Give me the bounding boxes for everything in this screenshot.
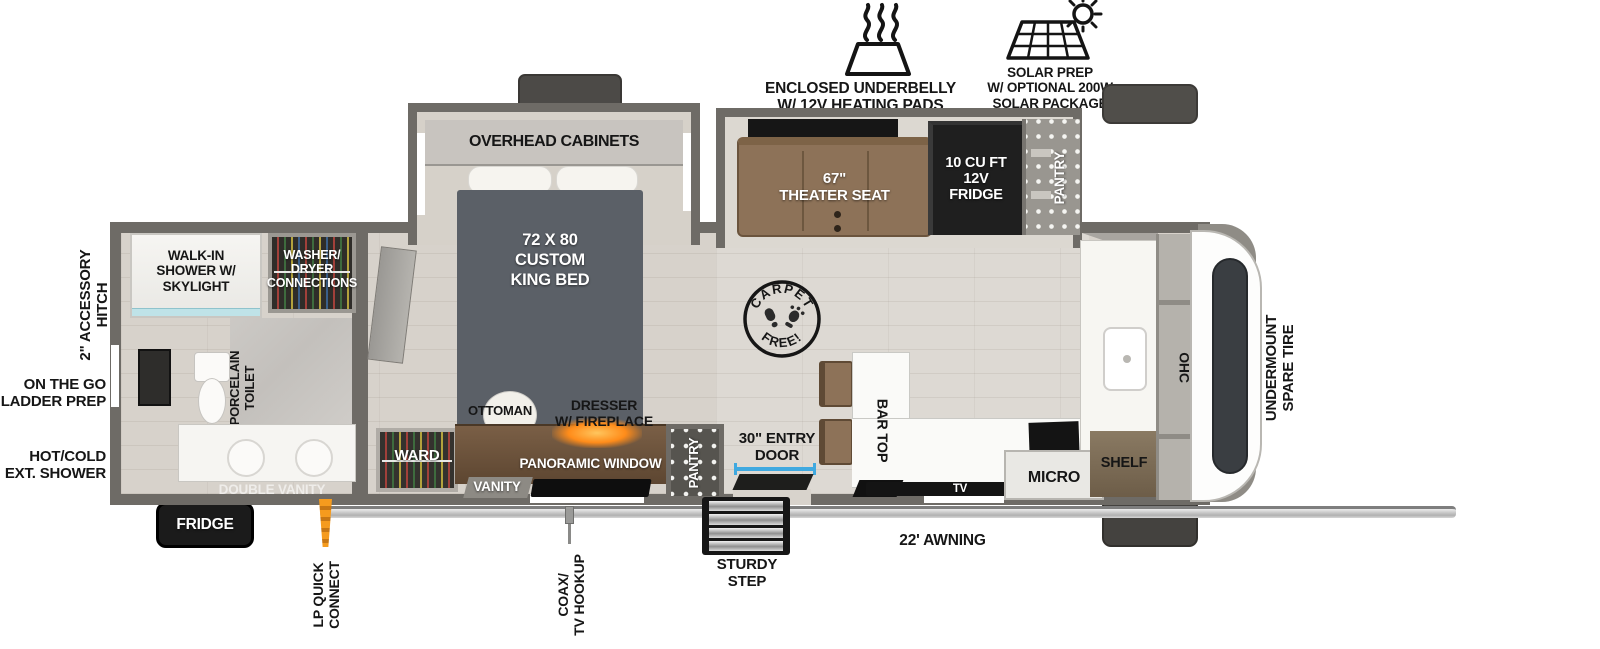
toilet-bowl bbox=[198, 378, 226, 424]
microwave-label: MICRO bbox=[1004, 468, 1104, 488]
kitchen-pantry bbox=[1022, 119, 1080, 235]
exterior-storage-box-top bbox=[1102, 84, 1198, 124]
sturdy-step-label: STURDY STEP bbox=[702, 556, 792, 592]
double-vanity-counter bbox=[178, 424, 356, 482]
sturdy-step-graphic bbox=[702, 497, 790, 555]
step-tread bbox=[709, 501, 783, 511]
heating-pads-icon bbox=[836, 2, 920, 78]
bar-stool-1 bbox=[819, 361, 853, 407]
svg-text:FREE!: FREE! bbox=[759, 329, 805, 350]
living-tv bbox=[866, 482, 1008, 496]
theater-seat-label: 67" THEATER SEAT bbox=[757, 168, 912, 208]
carpet-free-stamp: CARPET FREE! bbox=[738, 274, 826, 364]
bed-slide-window-right bbox=[683, 133, 691, 211]
entry-door-label: 30" ENTRY DOOR bbox=[734, 431, 820, 465]
overhead-cabinets-label: OVERHEAD CABINETS bbox=[469, 133, 639, 151]
bedroom-vanity-label: VANITY bbox=[466, 479, 528, 495]
step-tread bbox=[709, 541, 783, 551]
awning-rail bbox=[320, 506, 1456, 518]
walk-in-shower-label: WALK-IN SHOWER W/ SKYLIGHT bbox=[134, 242, 258, 300]
bar-top-label: BAR TOP bbox=[874, 376, 889, 486]
awning-label: 22' AWNING bbox=[880, 532, 1005, 550]
sink-faucet bbox=[1123, 355, 1131, 363]
kitchen-sink bbox=[1103, 327, 1147, 391]
king-bed bbox=[457, 190, 643, 430]
porcelain-toilet-label: PORCELAIN TOILET bbox=[228, 343, 258, 433]
ext-shower-label: HOT/COLD EXT. SHOWER bbox=[0, 448, 106, 484]
coax-tv-hookup-label: COAX/ TV HOOKUP bbox=[556, 540, 588, 649]
vanity-sink-left bbox=[227, 439, 265, 477]
wardrobe-label: WARD bbox=[376, 446, 458, 466]
exterior-fridge-label: FRIDGE bbox=[176, 516, 233, 533]
front-cap-window bbox=[1212, 258, 1248, 474]
spare-tire-label: UNDERMOUNT SPARE TIRE bbox=[1264, 293, 1298, 443]
step-tread bbox=[709, 514, 783, 524]
king-bed-label: 72 X 80 CUSTOM KING BED bbox=[470, 230, 630, 292]
measure-cap-left bbox=[734, 463, 737, 475]
bedroom-pantry-label: PANTRY bbox=[687, 428, 701, 498]
shower-glass bbox=[132, 308, 260, 316]
bar-stool-2 bbox=[819, 419, 853, 465]
lp-quick-connect-label: LP QUICK CONNECT bbox=[311, 545, 343, 645]
ottoman-label: OTTOMAN bbox=[458, 404, 542, 418]
step-tread bbox=[709, 528, 783, 538]
bedroom-vanity-top bbox=[530, 479, 651, 497]
cooktop bbox=[1028, 421, 1079, 454]
carpet-free-stamp-top-text: CARPET bbox=[747, 281, 817, 312]
entry-door-panel bbox=[732, 474, 813, 490]
bathroom-tv bbox=[138, 349, 171, 406]
pantry-shelf bbox=[1031, 191, 1051, 199]
footprints-graphic bbox=[763, 303, 806, 331]
living-tv-label: TV bbox=[944, 483, 976, 496]
cup-holder bbox=[834, 211, 841, 218]
svg-text:CARPET: CARPET bbox=[747, 281, 817, 312]
cup-holder bbox=[834, 225, 841, 232]
double-vanity-label: DOUBLE VANITY bbox=[190, 482, 354, 498]
kitchen-pantry-label: PANTRY bbox=[1052, 138, 1068, 218]
carpet-free-stamp-bottom-text: FREE! bbox=[759, 329, 805, 350]
coax-hookup-fitting bbox=[565, 506, 574, 524]
pantry-shelf bbox=[1031, 149, 1051, 157]
floorplan-canvas: ENCLOSED UNDERBELLY W/ 12V HEATING PADS … bbox=[0, 0, 1600, 649]
washer-dryer-label: WASHER/ DRYER CONNECTIONS bbox=[266, 240, 358, 298]
dresser-fireplace-label: DRESSER W/ FIREPLACE bbox=[545, 400, 663, 428]
bed-slide-window-left bbox=[417, 133, 425, 215]
exterior-fridge: FRIDGE bbox=[156, 502, 254, 548]
ladder-prep-label: ON THE GO LADDER PREP bbox=[0, 376, 106, 412]
accessory-hitch-label: 2" ACCESSORY HITCH bbox=[77, 235, 113, 375]
solar-prep-icon bbox=[996, 0, 1106, 70]
entry-door-measure-line bbox=[735, 467, 815, 471]
overhead-cabinets: OVERHEAD CABINETS bbox=[425, 120, 683, 166]
lp-quick-connect-fitting bbox=[319, 499, 332, 547]
12v-fridge-label: 10 CU FT 12V FRIDGE bbox=[928, 150, 1024, 208]
kitchen-shelf-label: SHELF bbox=[1090, 455, 1158, 471]
vanity-sink-right bbox=[295, 439, 333, 477]
panoramic-window-label: PANORAMIC WINDOW bbox=[503, 456, 678, 471]
